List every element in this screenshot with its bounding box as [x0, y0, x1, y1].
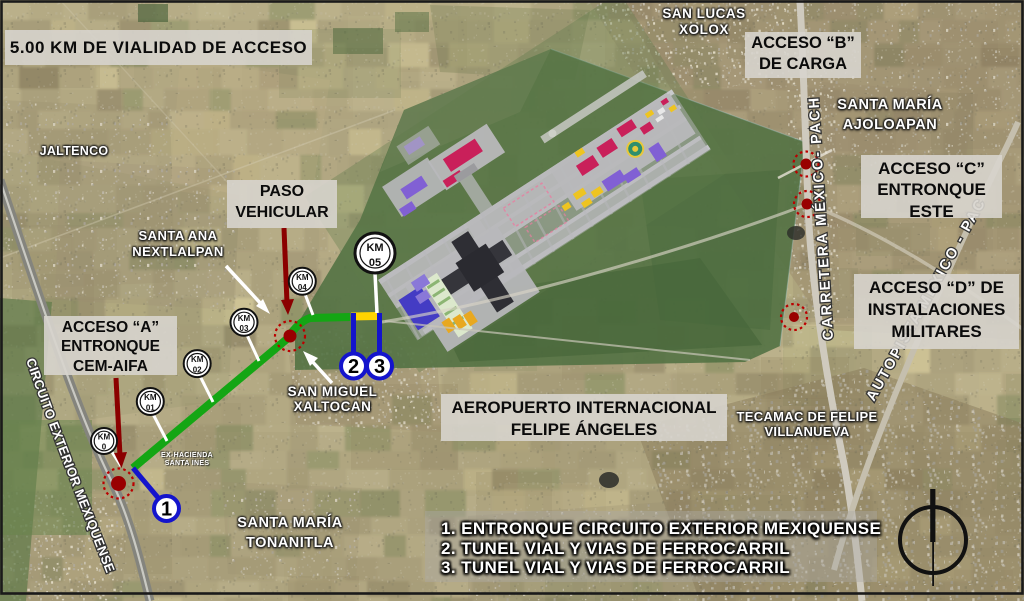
svg-text:2: 2 [348, 356, 359, 378]
svg-text:05: 05 [369, 257, 381, 269]
svg-text:KM: KM [98, 433, 111, 442]
svg-text:KM: KM [366, 242, 383, 254]
svg-text:KM: KM [238, 314, 251, 323]
svg-text:KM: KM [296, 273, 309, 282]
svg-text:04: 04 [298, 283, 307, 292]
svg-text:3: 3 [374, 356, 385, 378]
svg-text:KM: KM [144, 393, 157, 402]
svg-text:02: 02 [193, 366, 202, 375]
svg-text:03: 03 [240, 324, 249, 333]
svg-text:KM: KM [191, 355, 204, 364]
svg-text:0: 0 [102, 443, 107, 452]
svg-text:1: 1 [161, 499, 172, 521]
svg-text:01: 01 [146, 403, 155, 412]
